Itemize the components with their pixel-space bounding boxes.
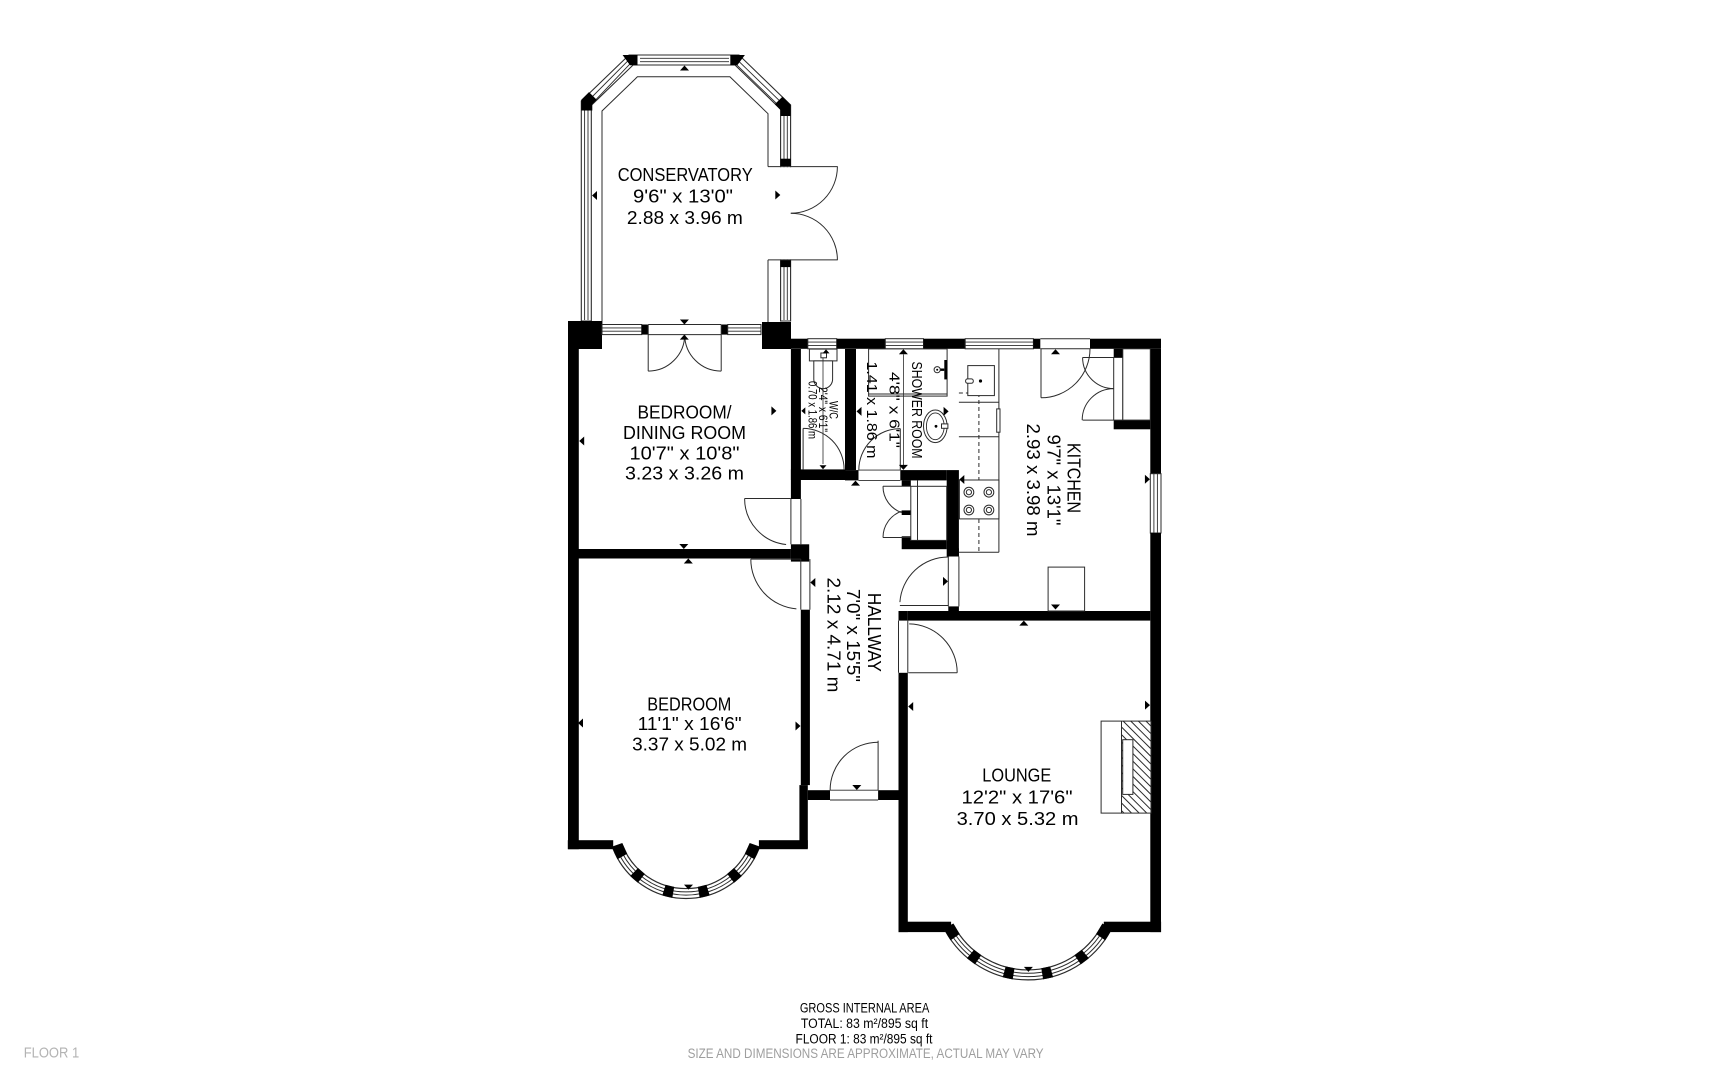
svg-text:3.70 x 5.32 m: 3.70 x 5.32 m bbox=[957, 809, 1079, 829]
svg-text:7'0" x 15'5": 7'0" x 15'5" bbox=[843, 589, 863, 682]
svg-text:DINING ROOM: DINING ROOM bbox=[623, 423, 746, 443]
svg-text:BEDROOM/: BEDROOM/ bbox=[638, 403, 732, 423]
svg-text:2.93 x 3.98 m: 2.93 x 3.98 m bbox=[1023, 424, 1043, 537]
svg-text:FLOOR 1: FLOOR 1 bbox=[24, 1044, 79, 1061]
svg-text:12'2" x 17'6": 12'2" x 17'6" bbox=[962, 787, 1073, 807]
svg-text:9'7" x 13'1": 9'7" x 13'1" bbox=[1044, 435, 1064, 526]
svg-text:11'1" x 16'6": 11'1" x 16'6" bbox=[638, 714, 742, 734]
svg-text:KITCHEN: KITCHEN bbox=[1064, 443, 1084, 513]
svg-text:9'6" x 13'0": 9'6" x 13'0" bbox=[633, 186, 733, 206]
svg-text:SIZE AND DIMENSIONS ARE APPROX: SIZE AND DIMENSIONS ARE APPROXIMATE, ACT… bbox=[688, 1046, 1044, 1061]
svg-text:BEDROOM: BEDROOM bbox=[647, 694, 731, 714]
svg-text:GROSS INTERNAL AREA: GROSS INTERNAL AREA bbox=[800, 1000, 930, 1015]
svg-text:2.88 x 3.96 m: 2.88 x 3.96 m bbox=[627, 208, 743, 228]
svg-text:2.12 x 4.71 m: 2.12 x 4.71 m bbox=[824, 578, 844, 693]
svg-text:3.37 x 5.02 m: 3.37 x 5.02 m bbox=[632, 734, 747, 754]
svg-text:FLOOR 1: 83 m²/895 sq ft: FLOOR 1: 83 m²/895 sq ft bbox=[796, 1031, 933, 1046]
svg-text:3.23 x 3.26 m: 3.23 x 3.26 m bbox=[625, 464, 744, 484]
svg-text:10'7" x 10'8": 10'7" x 10'8" bbox=[630, 444, 740, 464]
svg-text:SHOWER ROOM: SHOWER ROOM bbox=[908, 362, 924, 459]
svg-text:TOTAL: 83 m²/895 sq ft: TOTAL: 83 m²/895 sq ft bbox=[801, 1016, 929, 1031]
svg-text:4'8" x 6'1": 4'8" x 6'1" bbox=[886, 372, 902, 448]
svg-text:CONSERVATORY: CONSERVATORY bbox=[618, 165, 753, 185]
svg-text:LOUNGE: LOUNGE bbox=[982, 766, 1051, 786]
svg-text:1.41 x 1.86 m: 1.41 x 1.86 m bbox=[863, 362, 879, 459]
svg-text:0.70 x 1.86 m: 0.70 x 1.86 m bbox=[806, 381, 820, 439]
svg-text:HALLWAY: HALLWAY bbox=[864, 593, 884, 672]
